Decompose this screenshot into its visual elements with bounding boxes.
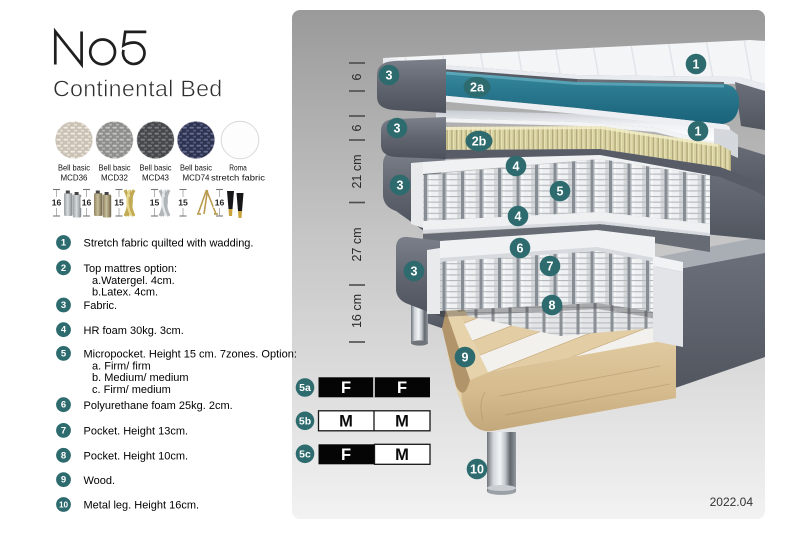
svg-text:5: 5 [61, 348, 67, 359]
svg-text:2022.04: 2022.04 [710, 495, 754, 509]
svg-text:8: 8 [549, 299, 556, 313]
svg-text:3: 3 [411, 265, 418, 279]
svg-text:3: 3 [394, 122, 401, 136]
svg-text:Roma: Roma [229, 163, 247, 173]
svg-text:10: 10 [470, 463, 484, 477]
svg-text:6: 6 [517, 242, 524, 256]
svg-text:6: 6 [350, 124, 364, 131]
svg-text:5a: 5a [299, 382, 311, 394]
svg-text:9: 9 [462, 351, 469, 365]
svg-text:Metal leg. Height 16cm.: Metal leg. Height 16cm. [84, 500, 200, 512]
svg-text:2: 2 [61, 263, 66, 274]
svg-text:Bell basic: Bell basic [99, 163, 132, 173]
svg-text:6: 6 [61, 400, 66, 411]
svg-text:16: 16 [215, 198, 225, 208]
svg-text:HR foam 30kg. 3cm.: HR foam 30kg. 3cm. [84, 325, 184, 337]
svg-text:MCD36: MCD36 [61, 172, 88, 182]
svg-text:1: 1 [695, 125, 702, 139]
svg-text:a. Firm/ firm: a. Firm/ firm [92, 360, 151, 372]
svg-text:MCD74: MCD74 [183, 172, 210, 182]
svg-text:a.Watergel. 4cm.: a.Watergel. 4cm. [92, 275, 175, 287]
svg-text:16 cm: 16 cm [350, 294, 364, 328]
svg-text:15: 15 [114, 198, 124, 208]
svg-text:15: 15 [150, 198, 160, 208]
svg-text:MCD43: MCD43 [142, 172, 169, 182]
svg-text:Bell basic: Bell basic [58, 163, 91, 173]
svg-text:27 cm: 27 cm [350, 227, 364, 261]
svg-text:9: 9 [61, 475, 66, 486]
svg-text:F: F [397, 379, 407, 397]
svg-text:3: 3 [397, 179, 404, 193]
svg-text:c. Firm/ medium: c. Firm/ medium [92, 384, 171, 396]
svg-text:Pocket. Height 10cm.: Pocket. Height 10cm. [84, 451, 189, 463]
svg-text:Pocket. Height 13cm.: Pocket. Height 13cm. [84, 426, 189, 438]
svg-text:MCD32: MCD32 [101, 172, 128, 182]
svg-text:2a: 2a [470, 81, 485, 95]
svg-text:F: F [341, 379, 351, 397]
svg-text:7: 7 [61, 425, 66, 436]
svg-text:b.Latex. 4cm.: b.Latex. 4cm. [92, 287, 158, 299]
svg-text:2b: 2b [472, 135, 487, 149]
svg-text:15: 15 [178, 198, 188, 208]
svg-text:Continental Bed: Continental Bed [53, 76, 223, 102]
svg-text:Bell basic: Bell basic [180, 163, 213, 173]
svg-text:4: 4 [513, 160, 520, 174]
svg-text:21 cm: 21 cm [350, 154, 364, 188]
svg-text:4: 4 [61, 325, 67, 336]
svg-text:Micropocket. Height 15 cm. 7zo: Micropocket. Height 15 cm. 7zones. Optio… [84, 349, 297, 361]
svg-text:1: 1 [61, 238, 67, 249]
svg-text:F: F [341, 446, 351, 464]
svg-text:5: 5 [557, 185, 564, 199]
svg-text:stretch fabric: stretch fabric [211, 172, 266, 182]
svg-text:Fabric.: Fabric. [84, 300, 118, 312]
svg-text:Bell basic: Bell basic [140, 163, 173, 173]
svg-text:3: 3 [386, 69, 393, 83]
svg-text:4: 4 [515, 210, 522, 224]
svg-text:3: 3 [61, 300, 66, 311]
svg-text:16: 16 [82, 198, 92, 208]
svg-text:Wood.: Wood. [84, 475, 116, 487]
svg-text:1: 1 [693, 58, 700, 72]
svg-text:Polyurethane foam 25kg. 2cm.: Polyurethane foam 25kg. 2cm. [84, 400, 233, 412]
svg-text:5b: 5b [299, 415, 311, 427]
svg-text:10: 10 [59, 501, 69, 510]
svg-text:b. Medium/ medium: b. Medium/ medium [92, 372, 189, 384]
svg-text:8: 8 [61, 450, 66, 461]
svg-text:Stretch fabric quilted with wa: Stretch fabric quilted with wadding. [84, 238, 254, 250]
svg-text:M: M [395, 413, 409, 431]
svg-text:5c: 5c [299, 448, 311, 460]
svg-text:M: M [395, 446, 409, 464]
svg-text:7: 7 [547, 260, 554, 274]
svg-text:Top mattres option:: Top mattres option: [84, 263, 178, 275]
svg-text:M: M [339, 413, 353, 431]
svg-text:6: 6 [350, 73, 364, 80]
svg-text:16: 16 [52, 198, 62, 208]
